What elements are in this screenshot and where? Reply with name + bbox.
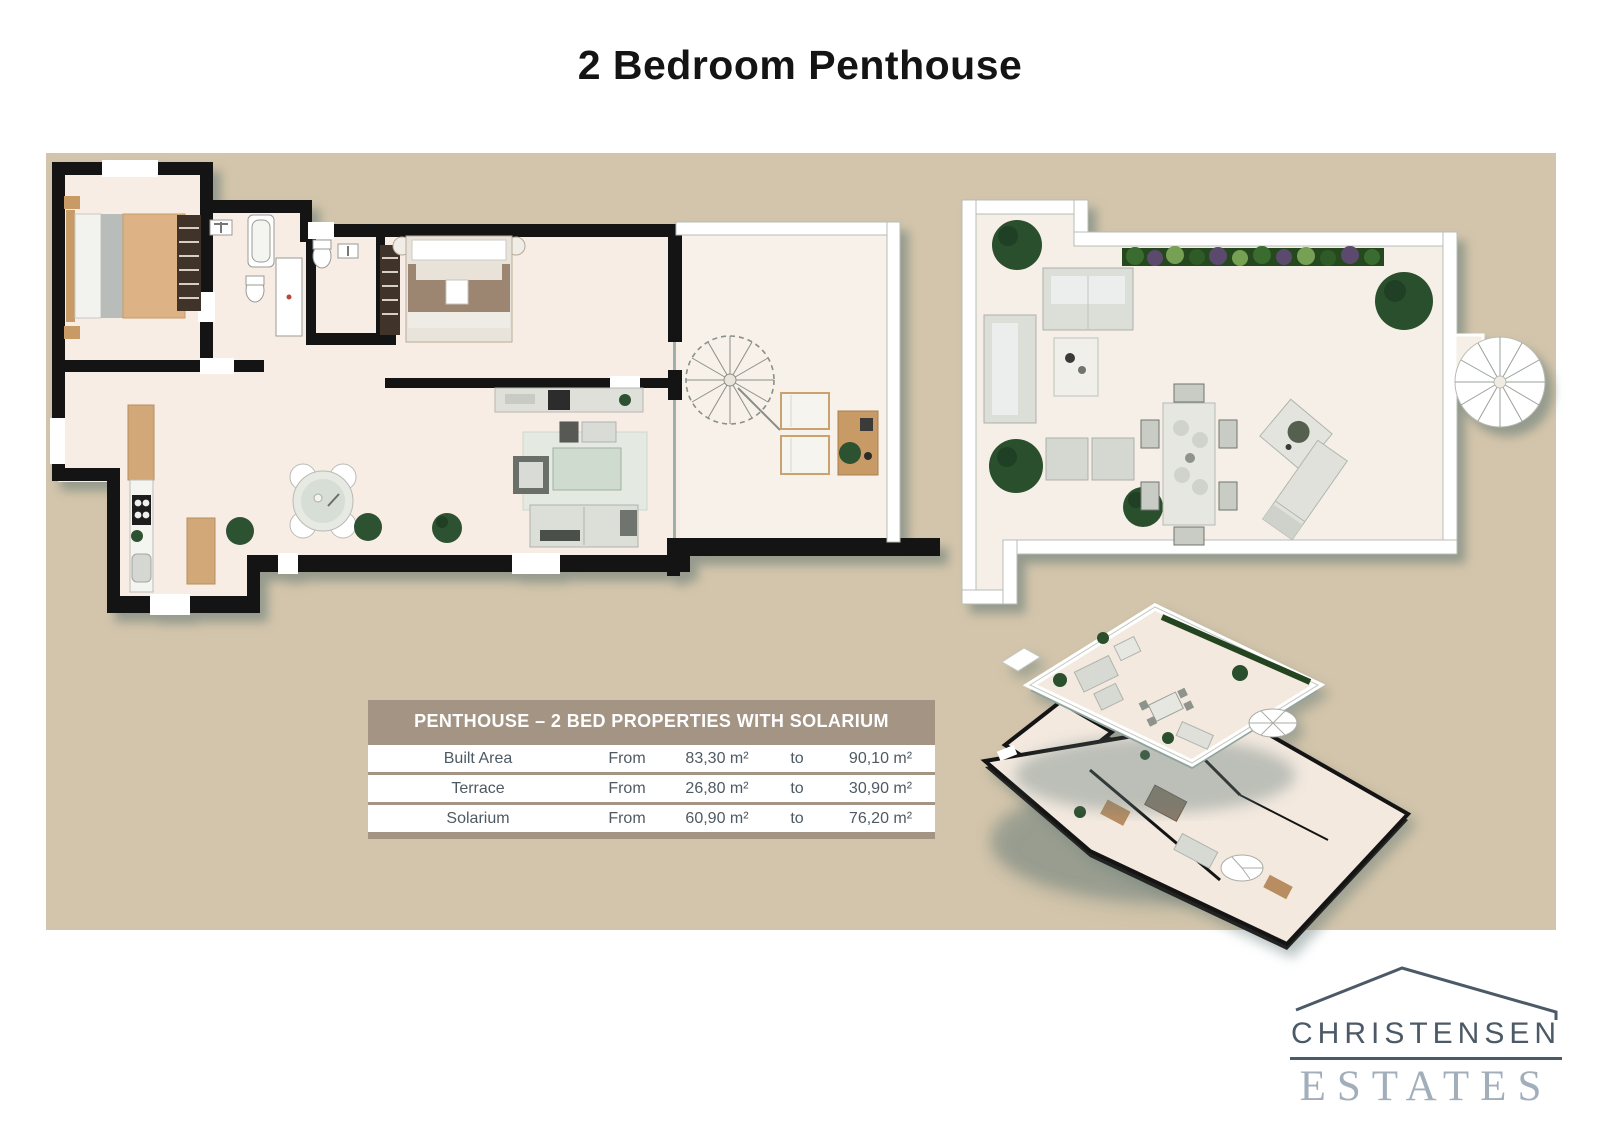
logo-divider	[1290, 1057, 1562, 1060]
spec-table: PENTHOUSE – 2 BED PROPERTIES WITH SOLARI…	[368, 700, 935, 839]
spec-from-word: From	[588, 780, 666, 798]
spec-table-header: PENTHOUSE – 2 BED PROPERTIES WITH SOLARI…	[368, 700, 935, 742]
spec-to-value: 76,20 m²	[826, 810, 935, 828]
brochure-page: 2 Bedroom Penthouse	[0, 0, 1600, 1131]
spec-to-value: 30,90 m²	[826, 780, 935, 798]
spec-from-value: 26,80 m²	[666, 780, 768, 798]
logo-name: CHRISTENSEN	[1290, 1017, 1562, 1051]
isometric-floorplan	[940, 580, 1430, 960]
page-title: 2 Bedroom Penthouse	[0, 42, 1600, 89]
spec-row-built-area: Built Area From 83,30 m² to 90,10 m²	[368, 745, 935, 772]
spec-row-terrace: Terrace From 26,80 m² to 30,90 m²	[368, 775, 935, 802]
spec-row-solarium: Solarium From 60,90 m² to 76,20 m²	[368, 805, 935, 832]
logo-type: ESTATES	[1290, 1062, 1562, 1111]
spec-from-value: 60,90 m²	[666, 810, 768, 828]
sideboard	[495, 388, 643, 412]
spec-label: Terrace	[368, 780, 588, 798]
spec-to-value: 90,10 m²	[826, 750, 935, 768]
spec-to-word: to	[768, 750, 826, 768]
roof-icon	[1290, 960, 1562, 1020]
spec-to-word: to	[768, 810, 826, 828]
spec-label: Solarium	[368, 810, 588, 828]
spec-from-word: From	[588, 750, 666, 768]
solarium-spiral-stair	[1455, 335, 1545, 427]
spec-from-word: From	[588, 810, 666, 828]
spec-from-value: 83,30 m²	[666, 750, 768, 768]
solarium-floorplan	[950, 190, 1550, 620]
wardrobe2	[380, 245, 400, 335]
brand-logo: CHRISTENSEN ESTATES	[1290, 960, 1562, 1111]
master-bed	[64, 196, 185, 339]
hedge	[1122, 246, 1384, 266]
bed2	[393, 236, 525, 342]
wardrobe	[177, 215, 201, 311]
spec-to-word: to	[768, 780, 826, 798]
spec-label: Built Area	[368, 750, 588, 768]
main-floorplan	[50, 160, 950, 630]
